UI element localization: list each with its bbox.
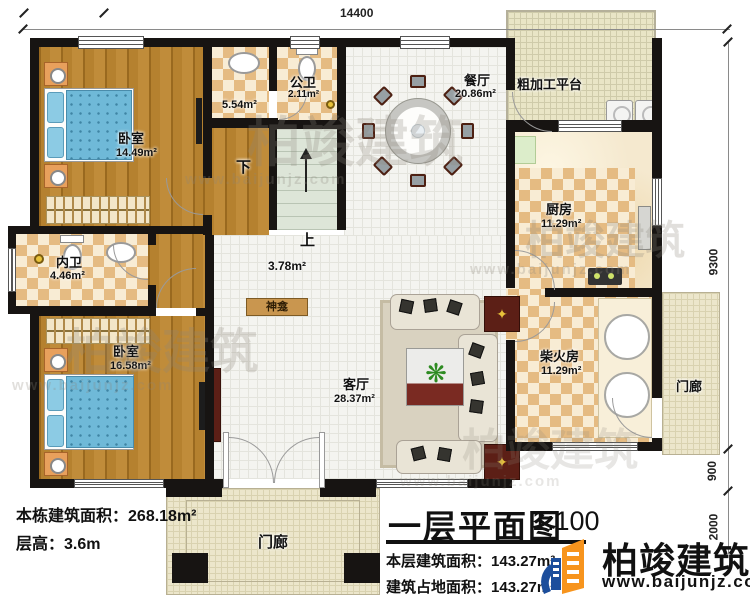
- public-bath-area: 2.11m²: [288, 90, 319, 100]
- footprint-label: 建筑占地面积：: [386, 579, 491, 596]
- door-knob-icon: [326, 100, 335, 109]
- chair: [410, 75, 426, 88]
- wall: [30, 38, 39, 234]
- watermark: 柏竣建筑 www.baijunjz.com: [185, 115, 525, 172]
- toilet-tank: [60, 235, 84, 243]
- toilet-tank: [296, 48, 318, 55]
- kitchen-label: 厨房: [546, 203, 572, 216]
- watermark: 柏竣建筑 www.baijunjz.com: [470, 220, 740, 262]
- pillow: [47, 415, 64, 447]
- wall: [506, 38, 515, 90]
- window: [400, 36, 450, 49]
- wall: [8, 226, 212, 234]
- total-area-line: 本栋建筑面积：268.18m²: [16, 502, 197, 526]
- wood-stove-icon: [604, 314, 650, 360]
- window: [558, 120, 622, 132]
- porch-column: [172, 553, 208, 583]
- footprint-line: 建筑占地面积：143.27m²: [386, 576, 555, 597]
- window: [8, 248, 16, 292]
- sofa-cushion: [423, 298, 438, 313]
- firewood-label: 柴火房: [540, 350, 579, 363]
- shrine-cabinet: 神龛: [246, 298, 308, 316]
- porch-wall-stub: [320, 486, 376, 497]
- right-dimension-main: 9300: [706, 249, 720, 276]
- wall: [148, 226, 156, 245]
- wardrobe: [46, 196, 150, 224]
- floor-height-value: 3.6m: [64, 536, 100, 553]
- floor-area-line: 本层建筑面积：143.27m²: [386, 550, 555, 571]
- closet-area: 5.54m²: [222, 100, 257, 111]
- brand-website: www.baijunjz.com: [602, 572, 750, 592]
- total-area-label: 本栋建筑面积：: [16, 508, 128, 525]
- window: [78, 36, 144, 49]
- living-area: 28.37m²: [334, 394, 375, 405]
- platform-label: 粗加工平台: [517, 78, 582, 91]
- pillow: [47, 92, 64, 123]
- nightstand: [44, 452, 68, 476]
- porch-front-label: 门廊: [258, 535, 288, 550]
- top-dimension-value: 14400: [340, 6, 373, 20]
- nightstand: [44, 164, 68, 188]
- floor-height-label: 层高：: [16, 536, 64, 553]
- floor-area-label: 本层建筑面积：: [386, 553, 491, 570]
- stair-up-label: 上: [300, 233, 315, 248]
- porch-column: [344, 553, 380, 583]
- ensuite-label: 内卫: [56, 256, 82, 269]
- door-frame: [319, 432, 325, 488]
- wall: [30, 308, 156, 316]
- dining-area: 20.86m²: [455, 89, 496, 100]
- window: [290, 36, 320, 49]
- window: [74, 479, 164, 488]
- firewood-area: 11.29m²: [541, 366, 581, 377]
- shrine-label: 神龛: [266, 301, 288, 313]
- porch-right-label: 门廊: [676, 380, 702, 393]
- floor-height-line: 层高：3.6m: [16, 530, 100, 554]
- watermark: 柏竣建筑 www.baijunjz.com: [400, 428, 700, 474]
- hall-area: 3.78m²: [268, 260, 306, 272]
- plant-icon: ❋: [421, 358, 451, 388]
- top-dimension-line: [22, 29, 730, 30]
- bedroom1-area: 14.49m²: [116, 148, 157, 159]
- wall: [269, 47, 277, 91]
- nightstand: [44, 62, 68, 86]
- shower-valve-icon: [34, 254, 44, 264]
- dimension-tick: [99, 8, 109, 18]
- plan-scale: 1:100: [532, 506, 600, 537]
- floor-plan: ❋ ✦ ✦ 神龛: [0, 0, 750, 604]
- right-dimension-porch: 900: [705, 461, 719, 481]
- brand-logo-icon: [534, 534, 598, 600]
- wall: [545, 288, 662, 297]
- wall: [203, 215, 212, 235]
- right-dimension-line: [728, 42, 729, 554]
- dining-label: 餐厅: [464, 74, 490, 87]
- sofa-cushion: [469, 399, 484, 414]
- ensuite-area: 4.46m²: [50, 271, 85, 282]
- sofa-cushion: [470, 371, 485, 386]
- pillow: [47, 127, 64, 158]
- public-bath-label: 公卫: [290, 76, 316, 89]
- sofa-cushion: [399, 299, 414, 314]
- watermark: 柏竣建筑 www.baijunjz.com: [12, 328, 312, 378]
- bedroom1-label: 卧室: [118, 132, 144, 145]
- sink-icon: [228, 52, 260, 74]
- living-label: 客厅: [343, 378, 369, 391]
- porch-wall-stub: [166, 486, 222, 497]
- dimension-tick: [19, 8, 29, 18]
- total-area-value: 268.18m²: [128, 508, 197, 525]
- chair: [410, 174, 426, 187]
